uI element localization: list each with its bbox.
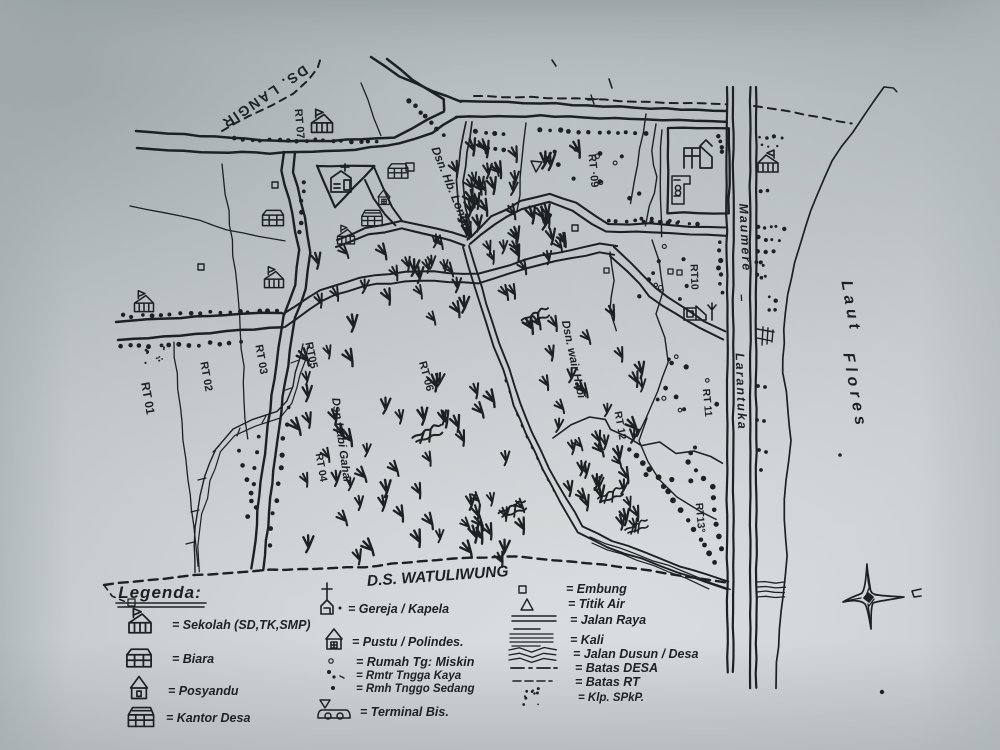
- svg-text:= Biara: = Biara: [172, 652, 214, 666]
- svg-text:= Kali: = Kali: [570, 633, 604, 647]
- svg-text:= Batas DESA: = Batas DESA: [575, 661, 658, 675]
- svg-text:= Pustu / Polindes.: = Pustu / Polindes.: [352, 635, 463, 649]
- svg-text:= Jalan Dusun / Desa: = Jalan Dusun / Desa: [573, 647, 698, 661]
- svg-text:= Terminal Bis.: = Terminal Bis.: [360, 705, 449, 719]
- svg-text:= Rmh Tnggo Sedang: = Rmh Tnggo Sedang: [356, 683, 475, 695]
- svg-text:= Batas RT: = Batas RT: [575, 675, 641, 689]
- svg-text:= Rumah Tg: Miskin: = Rumah Tg: Miskin: [356, 655, 475, 669]
- svg-text:= Kantor Desa: = Kantor Desa: [166, 711, 250, 725]
- svg-text:RT 11: RT 11: [700, 388, 714, 417]
- svg-text:Larantuka: Larantuka: [733, 353, 750, 431]
- svg-text:–: –: [735, 294, 750, 302]
- svg-text:= Embung: = Embung: [566, 582, 627, 596]
- svg-text:= Klp. SPkP.: = Klp. SPkP.: [578, 692, 644, 704]
- svg-text:= Titik Air: = Titik Air: [568, 597, 626, 611]
- svg-text:= Sekolah (SD,TK,SMP): = Sekolah (SD,TK,SMP): [172, 618, 311, 632]
- svg-text:= Posyandu: = Posyandu: [168, 684, 239, 698]
- svg-text:= Rmtr Tngga Kaya: = Rmtr Tngga Kaya: [356, 670, 462, 682]
- svg-text:RT10: RT10: [688, 264, 701, 290]
- svg-text:= Gereja / Kapela: = Gereja / Kapela: [348, 602, 449, 616]
- svg-text:= Jalan Raya: = Jalan Raya: [570, 613, 646, 627]
